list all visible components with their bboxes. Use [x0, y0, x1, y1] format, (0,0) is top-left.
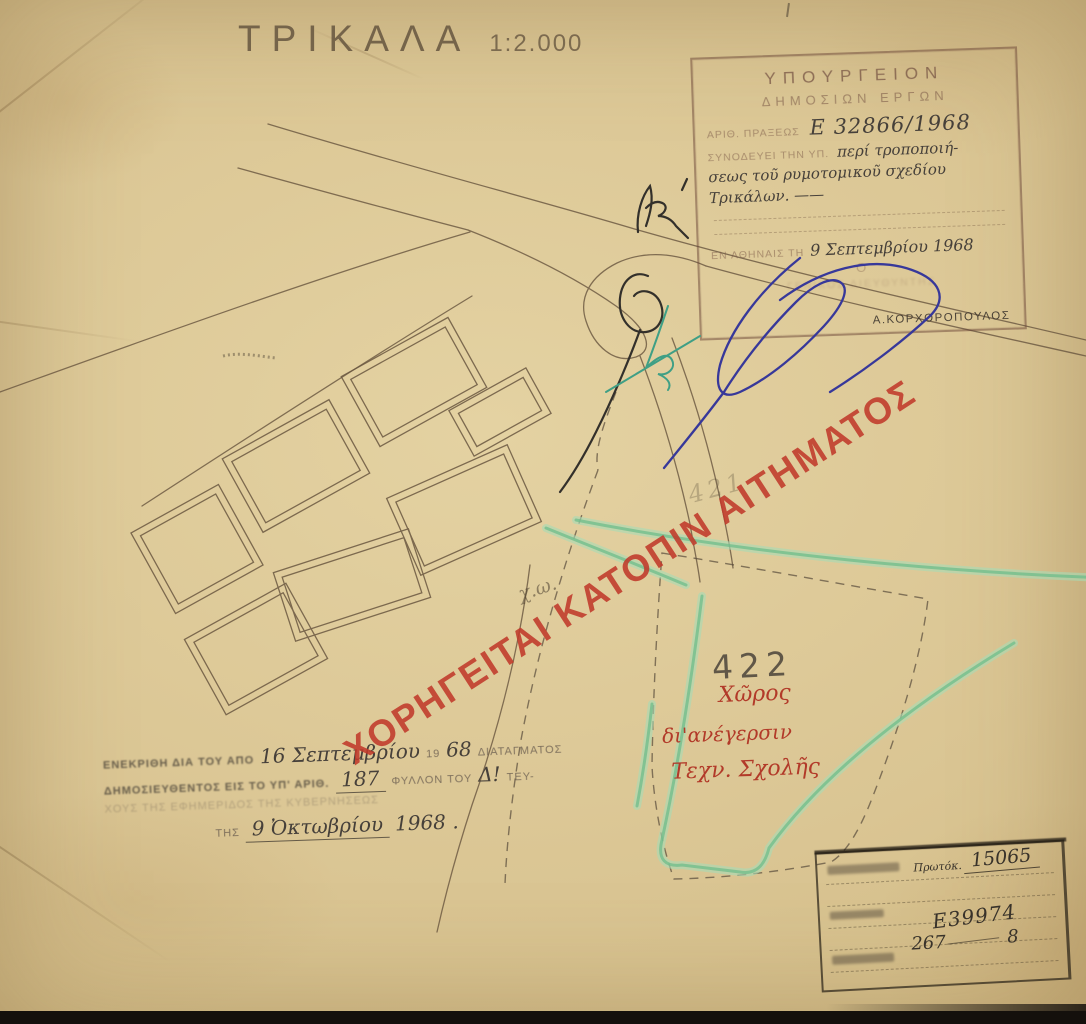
scan-bottom-edge	[0, 1011, 1086, 1024]
signature-monogram-dark	[560, 274, 662, 492]
signature-initial-dark	[638, 179, 688, 238]
signatures-layer	[0, 0, 1086, 1024]
scan-bottom-edge-shadow	[826, 1004, 1086, 1011]
scanned-town-plan-sheet: ΤΡΙΚΑΛΑ 1:2.000 ΥΠΟΥΡΓΕΙΟΝ ΔΗΜΟΣΙΩΝ ΕΡΓΩ…	[0, 0, 1086, 1024]
